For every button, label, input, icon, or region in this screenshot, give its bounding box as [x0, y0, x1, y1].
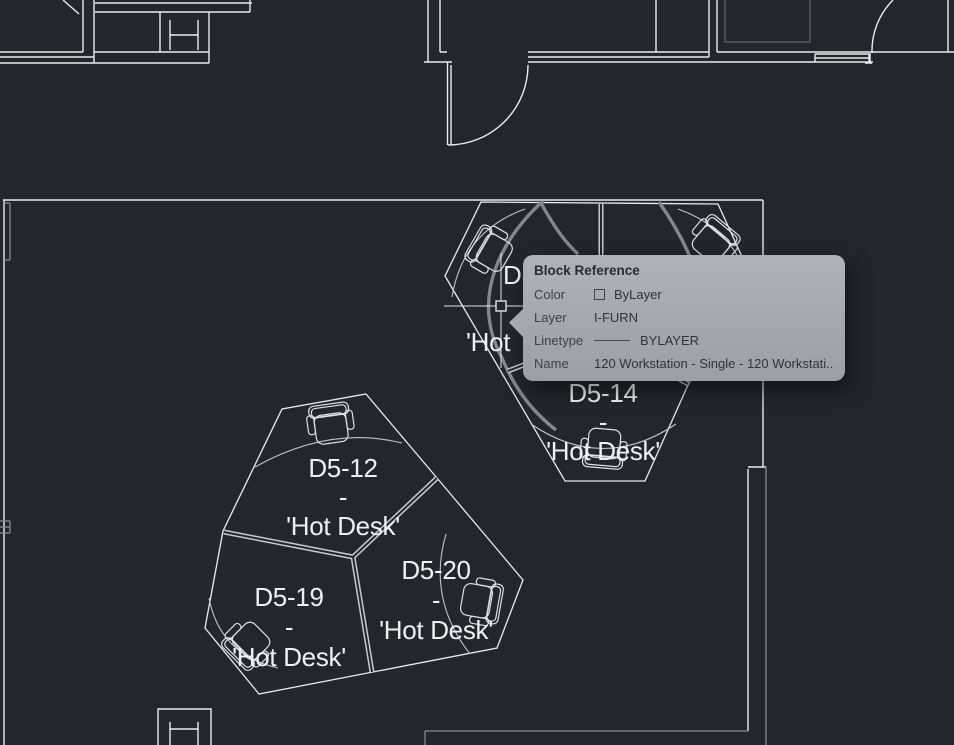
desk-label-d5-19[interactable]: D5-19 - 'Hot Desk' — [232, 582, 346, 672]
tooltip-row-color: Color ByLayer — [534, 283, 834, 306]
desk-description[interactable]: 'Hot Desk' — [232, 642, 346, 672]
desk-label-d5-12[interactable]: D5-12 - 'Hot Desk' — [286, 453, 400, 541]
property-label: Linetype — [534, 333, 594, 348]
door-swing-arc — [872, 0, 893, 53]
property-value: BYLAYER — [640, 333, 699, 348]
desk-code-partial[interactable]: D — [503, 260, 521, 290]
property-value: I-FURN — [594, 310, 638, 325]
desk-description[interactable]: 'Hot Desk' — [286, 511, 400, 541]
property-label: Name — [534, 356, 594, 371]
walls-dim — [725, 0, 810, 42]
tooltip-row-name: Name 120 Workstation - Single - 120 Work… — [534, 352, 834, 375]
property-value: 120 Workstation - Single - 120 Workstati… — [594, 356, 834, 371]
property-label: Layer — [534, 310, 594, 325]
pickbox — [496, 301, 506, 311]
desk-description[interactable]: 'Hot Desk' — [546, 436, 660, 466]
desk-label-d5-20[interactable]: D5-20 - 'Hot Desk' — [379, 555, 493, 645]
desk-separator[interactable]: - — [599, 407, 607, 437]
desk-code[interactable]: D5-12 — [308, 453, 377, 483]
cad-viewport[interactable]: D5-12 - 'Hot Desk' D5-14 - 'Hot Desk' D5… — [0, 0, 954, 745]
property-value: ByLayer — [614, 287, 662, 302]
tooltip-title: Block Reference — [534, 262, 834, 280]
desk-code[interactable]: D5-19 — [254, 582, 323, 612]
color-swatch-icon — [594, 289, 605, 300]
desk-code[interactable]: D5-14 — [568, 378, 637, 408]
tooltip-row-linetype: Linetype BYLAYER — [534, 329, 834, 352]
desk-description-partial[interactable]: 'Hot — [466, 327, 511, 357]
property-label: Color — [534, 287, 594, 302]
linetype-sample-icon — [594, 340, 630, 341]
desk-separator[interactable]: - — [432, 585, 440, 615]
desk-separator[interactable]: - — [285, 612, 293, 642]
desk-separator[interactable]: - — [339, 482, 347, 512]
desk-code[interactable]: D5-20 — [401, 555, 470, 585]
tooltip-row-layer: Layer I-FURN — [534, 306, 834, 329]
desk-label-d5-14[interactable]: D5-14 - 'Hot Desk' — [546, 378, 660, 466]
desk-description[interactable]: 'Hot Desk' — [379, 615, 493, 645]
block-reference-tooltip: Block Reference Color ByLayer Layer I-FU… — [523, 255, 845, 381]
